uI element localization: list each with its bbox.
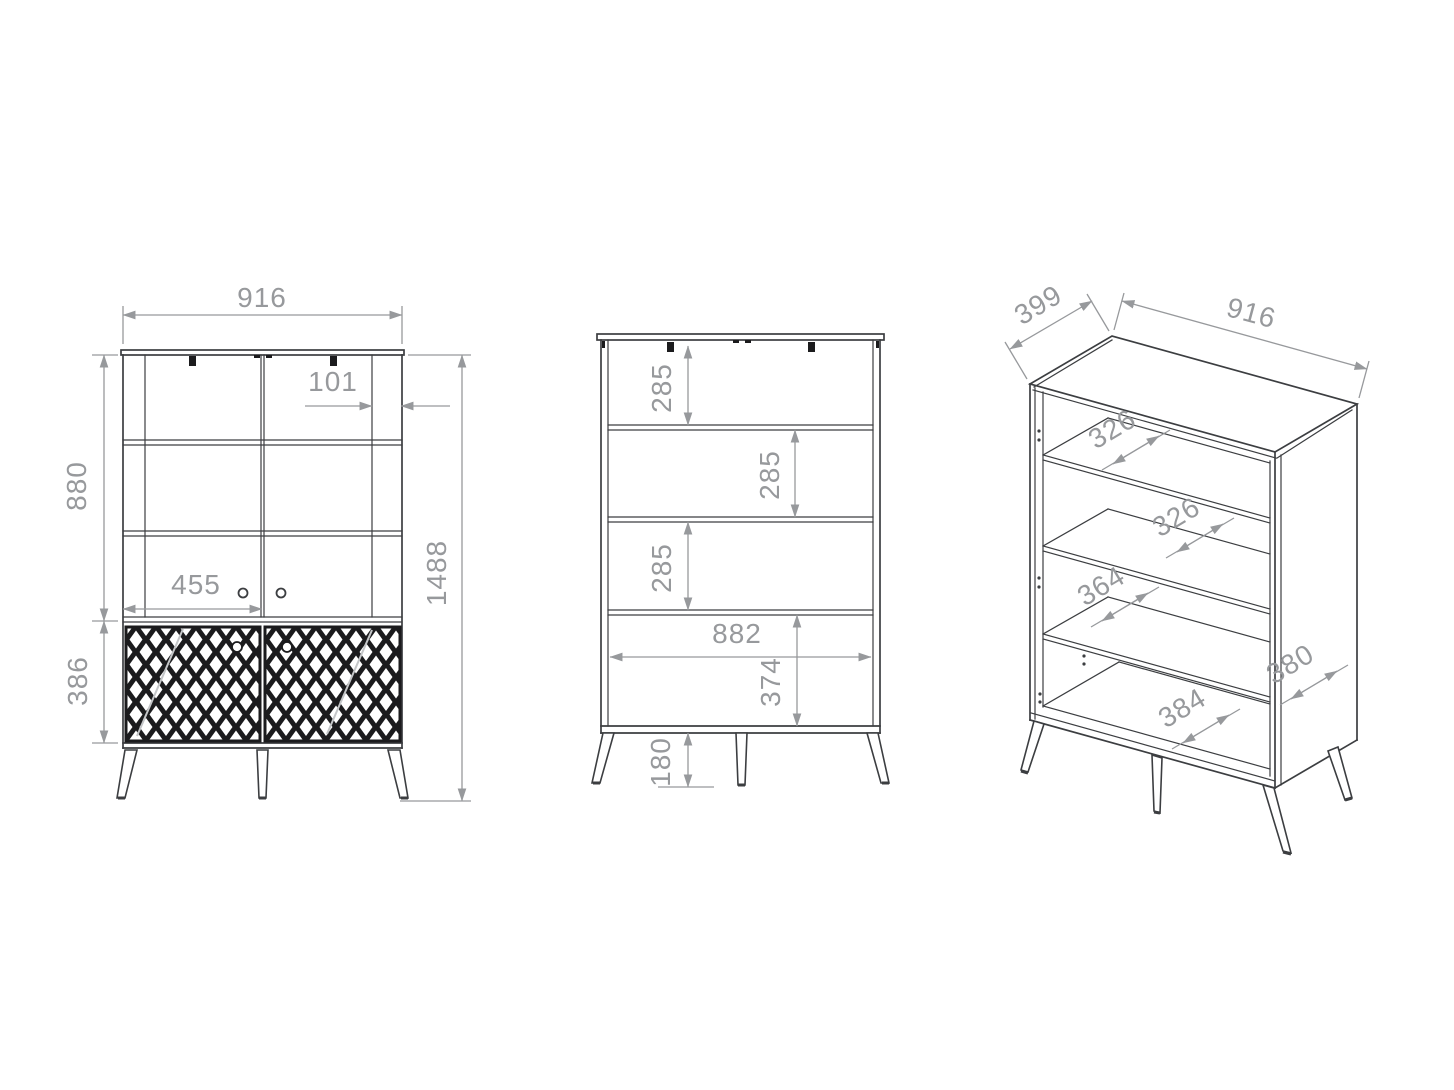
dim-label-inner-width: 882 <box>712 618 762 649</box>
leg <box>388 750 408 798</box>
dim-label-lower-height: 386 <box>62 656 93 706</box>
dim-label-shelf-depth-2: 326 <box>1147 491 1206 543</box>
dim-label-front-width: 916 <box>237 282 287 313</box>
dim-label-bottom-section: 374 <box>755 657 786 707</box>
front-top-board <box>121 350 404 355</box>
leg <box>736 733 747 785</box>
iso-shelves <box>1043 418 1270 702</box>
dim-label-frame-width: 101 <box>308 366 358 397</box>
front-view <box>117 350 408 798</box>
dim-label-total-height: 1488 <box>421 540 452 606</box>
dim-label-iso-depth: 399 <box>1009 279 1068 331</box>
leg <box>117 750 137 798</box>
dim-label-shelf-gap-2: 285 <box>754 450 785 500</box>
hinge-icon <box>189 356 196 366</box>
isometric-view <box>1021 336 1357 854</box>
dim-label-door-width: 455 <box>171 569 221 600</box>
dim-label-upper-height: 880 <box>61 461 92 511</box>
carcass-top-board <box>597 334 884 340</box>
leg <box>592 733 614 783</box>
front-legs <box>117 750 408 798</box>
leg <box>1152 755 1162 813</box>
carcass-dimensions: 285 285 285 882 374 180 <box>610 346 871 787</box>
leg <box>257 750 268 798</box>
leg <box>1328 747 1352 800</box>
door-knob <box>232 642 242 652</box>
dim-label-shelf-gap-1: 285 <box>646 363 677 413</box>
leg <box>867 733 889 783</box>
carcass-legs <box>592 733 889 785</box>
dim-label-shelf-gap-3: 285 <box>646 543 677 593</box>
hinge-icon <box>808 342 815 352</box>
leg <box>1263 785 1291 853</box>
door-knob <box>277 589 286 598</box>
door-knob <box>239 589 248 598</box>
dim-label-iso-width: 916 <box>1223 291 1279 334</box>
lattice-doors <box>126 627 400 741</box>
leg <box>1021 721 1044 772</box>
drawing-sheet: 916 880 386 101 455 1488 <box>0 0 1454 1090</box>
shelf-pin-holes <box>1037 429 1085 703</box>
hinge-icon <box>667 342 674 352</box>
door-knob <box>282 642 292 652</box>
hinge-icon <box>330 356 337 366</box>
dim-label-shelf-depth-1: 326 <box>1083 403 1142 455</box>
dim-label-leg-height: 180 <box>645 737 676 787</box>
technical-drawing-canvas: 916 880 386 101 455 1488 <box>0 0 1454 1090</box>
carcass-view <box>592 334 889 785</box>
dim-label-bottom-depth: 384 <box>1153 682 1212 734</box>
